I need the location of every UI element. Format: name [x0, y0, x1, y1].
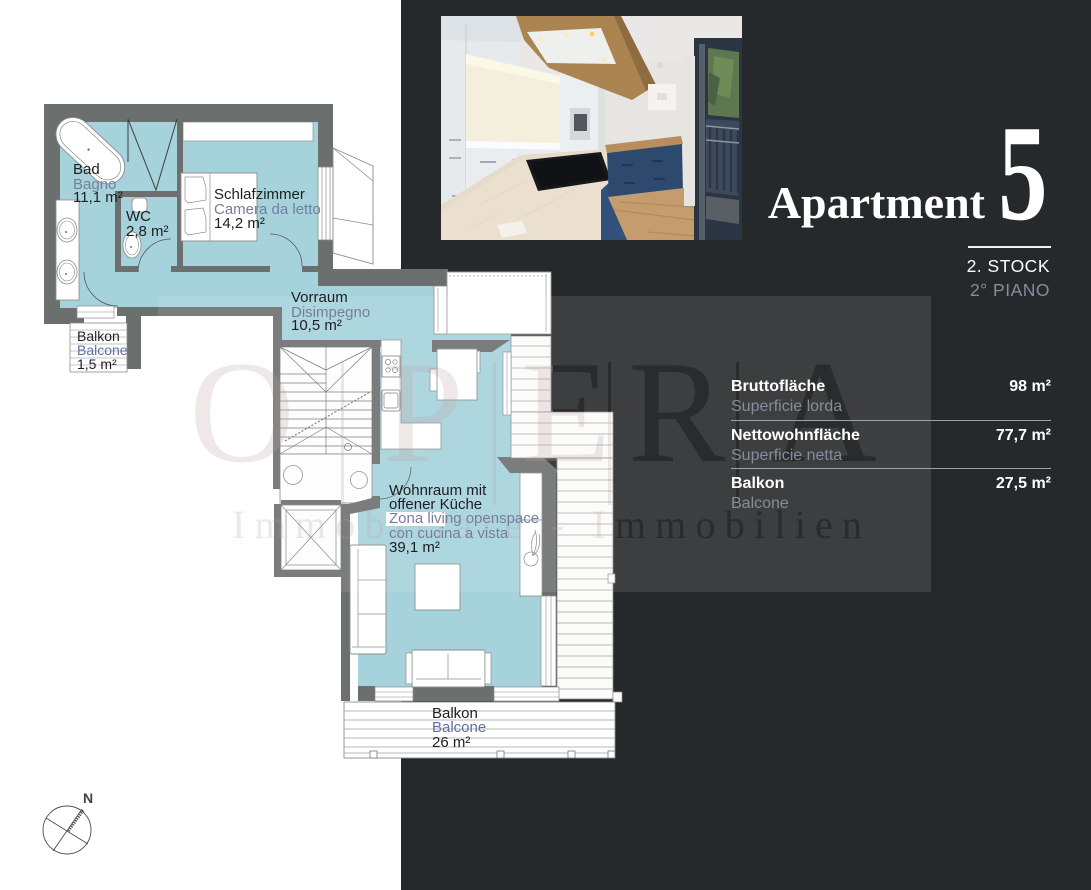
svg-text:39,1 m²: 39,1 m² [389, 539, 440, 556]
svg-text:11,1 m²: 11,1 m² [73, 189, 123, 206]
svg-text:P: P [382, 331, 463, 493]
svg-text:O: O [189, 331, 294, 493]
svg-text:26 m²: 26 m² [432, 734, 470, 751]
svg-text:2,8 m²: 2,8 m² [126, 223, 169, 240]
svg-text:N: N [83, 790, 93, 806]
svg-text:14,2 m²: 14,2 m² [214, 215, 265, 232]
svg-text:10,5 m²: 10,5 m² [291, 317, 342, 334]
svg-text:1,5 m²: 1,5 m² [77, 356, 117, 372]
svg-text:R: R [628, 331, 726, 493]
